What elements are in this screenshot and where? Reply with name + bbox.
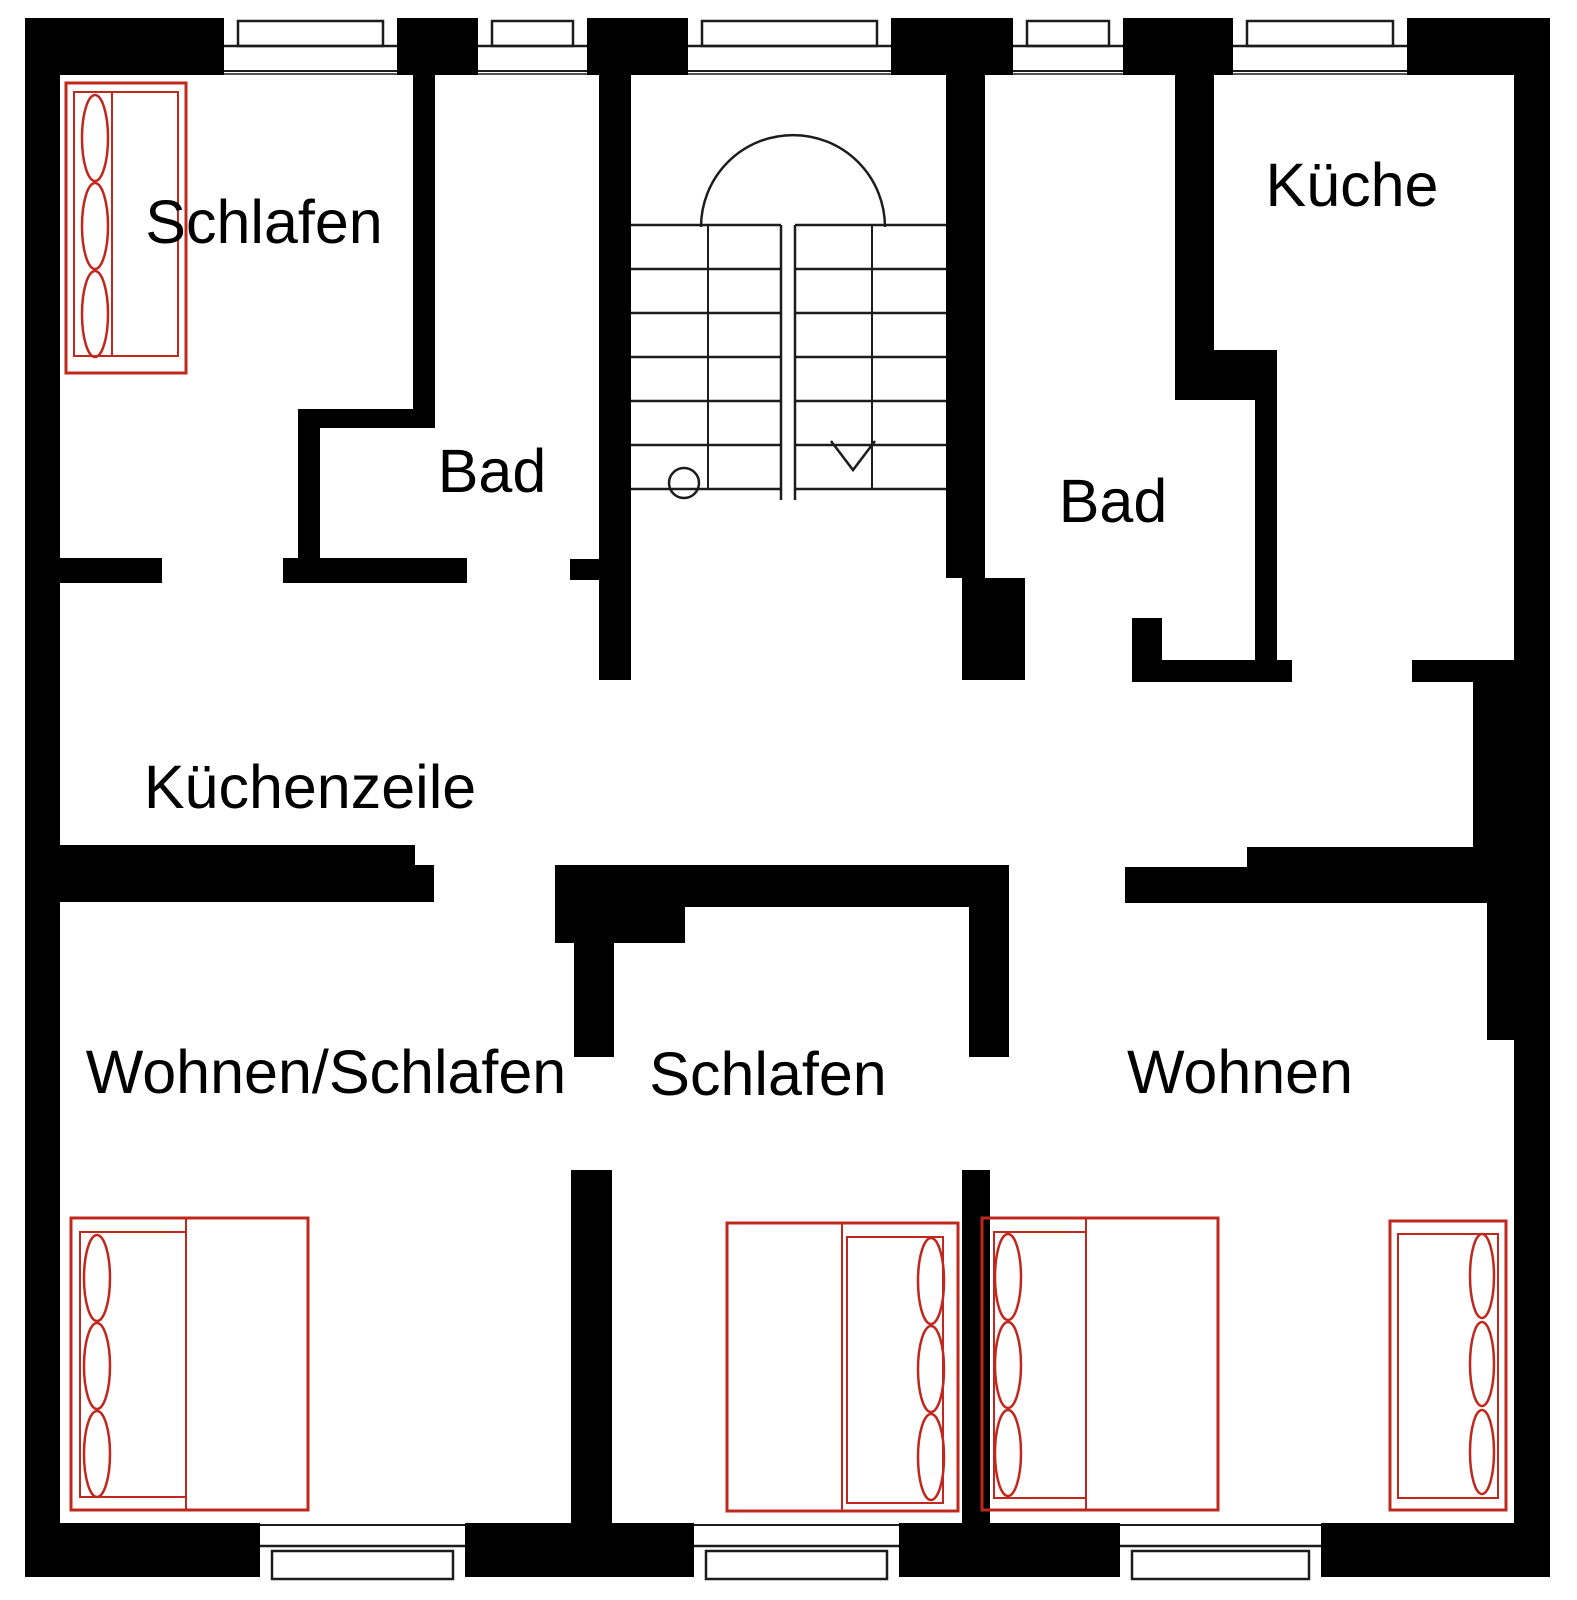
window-sill-outer: [492, 21, 573, 46]
wall-schlafen2-block: [555, 907, 685, 943]
window-sill-outer: [1247, 21, 1393, 46]
window-top-3: [688, 18, 891, 75]
outer-left: [25, 18, 60, 1577]
outer-top-seg-4: [891, 18, 1013, 75]
wall-bad-kueche-lower: [1255, 400, 1277, 660]
bed-mattress: [847, 1237, 943, 1503]
wall-corridor-right-b: [1125, 867, 1487, 903]
stair-arc: [701, 135, 885, 227]
wall-corridor-left-a: [60, 845, 415, 865]
stair-start-circle: [669, 468, 699, 498]
floor-plan-drawing: Schlafen Bad Küche Bad Küchenzeile Wohne…: [0, 0, 1577, 1600]
bed-frame: [1390, 1221, 1506, 1510]
bed-mattress: [1398, 1234, 1498, 1498]
bed-pillow: [82, 183, 108, 269]
window-sill-outer: [1132, 1551, 1309, 1579]
window-bottom-1: [260, 1523, 465, 1579]
bed-frame: [982, 1218, 1218, 1510]
bed-pillow: [84, 1323, 110, 1409]
room-label-kueche: Küche: [1266, 151, 1439, 219]
window-sill-outer: [238, 21, 383, 46]
outer-right: [1514, 18, 1550, 1577]
wall-stair-right-lower: [962, 578, 1025, 680]
wall-right-protrusion: [1473, 660, 1514, 847]
bed-pillow: [84, 1411, 110, 1497]
bed-pillow: [995, 1322, 1021, 1408]
window-sill-outer: [1027, 21, 1109, 46]
bed-pillow: [84, 1235, 110, 1321]
window-top-4: [1013, 18, 1123, 75]
wall-schlafen2-right-dn: [962, 1170, 990, 1523]
wall-bad-left-bottom: [283, 558, 467, 583]
room-label-wohnen: Wohnen: [1127, 1038, 1353, 1106]
bed-wohnen-single: [1390, 1221, 1506, 1510]
bed-pillow: [1470, 1234, 1494, 1318]
wall-bad-kueche-step: [1214, 350, 1277, 400]
wall-corridor-left-b: [60, 865, 434, 902]
window-top-1: [224, 18, 397, 75]
outer-bottom-seg-2: [465, 1523, 694, 1577]
room-label-kuechenzeile: Küchenzeile: [144, 753, 476, 821]
bed-mattress: [80, 1232, 186, 1497]
bed-mattress: [994, 1232, 1086, 1498]
wall-bad-left-side: [298, 409, 320, 580]
outer-top-seg-5: [1123, 18, 1233, 75]
wall-schlafen-bad: [413, 75, 435, 428]
bed-pillow: [995, 1234, 1021, 1320]
bed-pillow: [1470, 1410, 1494, 1494]
bed-pillow: [1470, 1322, 1494, 1406]
wall-schlafen2-left-dn: [571, 1170, 612, 1523]
room-labels-layer: Schlafen Bad Küche Bad Küchenzeile Wohne…: [86, 151, 1439, 1108]
window-bottom-3: [1120, 1523, 1321, 1579]
bed-pillow: [82, 271, 108, 357]
wall-corridor-mid: [555, 865, 1009, 907]
outer-bottom-seg-3: [899, 1523, 1120, 1577]
room-label-schlafen-bottom: Schlafen: [649, 1040, 886, 1108]
bed-pillow: [918, 1326, 944, 1412]
room-label-bad-left: Bad: [438, 437, 547, 505]
outer-top-seg-3: [587, 18, 688, 75]
room-label-schlafen-top-left: Schlafen: [145, 188, 382, 256]
window-sill-outer: [272, 1551, 453, 1579]
floor-plan-page: Schlafen Bad Küche Bad Küchenzeile Wohne…: [0, 0, 1577, 1600]
window-sill-outer: [706, 1551, 887, 1579]
wall-bad-right-stub: [1132, 618, 1162, 660]
outer-top-seg-2: [397, 18, 478, 75]
bed-frame: [71, 1218, 308, 1510]
wall-schlafen-bottom: [60, 558, 162, 583]
bed-pillow: [82, 95, 108, 181]
window-top-5: [1233, 18, 1407, 75]
wall-corridor-right-a: [1247, 847, 1487, 867]
room-label-wohnen-schlafen: Wohnen/Schlafen: [86, 1038, 566, 1106]
window-sill-outer: [702, 21, 877, 46]
wall-schlafen2-left-up: [574, 943, 614, 1057]
wall-stair-left: [599, 75, 631, 680]
window-top-2: [478, 18, 587, 75]
wall-bad-kueche-upper: [1175, 75, 1214, 400]
window-bottom-2: [694, 1523, 899, 1579]
bed-pillow: [918, 1414, 944, 1500]
wall-right-column: [1487, 847, 1520, 1040]
wall-schlafen2-right-up: [969, 907, 1009, 1057]
bed-pillow: [918, 1238, 944, 1324]
bed-schlafen-bottom: [727, 1223, 958, 1511]
staircase: [631, 135, 946, 500]
outer-bottom-seg-1: [25, 1523, 260, 1577]
wall-stair-right-upper: [946, 75, 985, 578]
room-label-bad-right: Bad: [1059, 467, 1168, 535]
bed-wohnen-double: [982, 1218, 1218, 1510]
wall-bad-right-bottom: [1132, 660, 1292, 682]
outer-bottom-seg-4: [1321, 1523, 1550, 1577]
bed-pillow: [995, 1410, 1021, 1496]
bed-wohnen-schlafen: [71, 1218, 308, 1510]
